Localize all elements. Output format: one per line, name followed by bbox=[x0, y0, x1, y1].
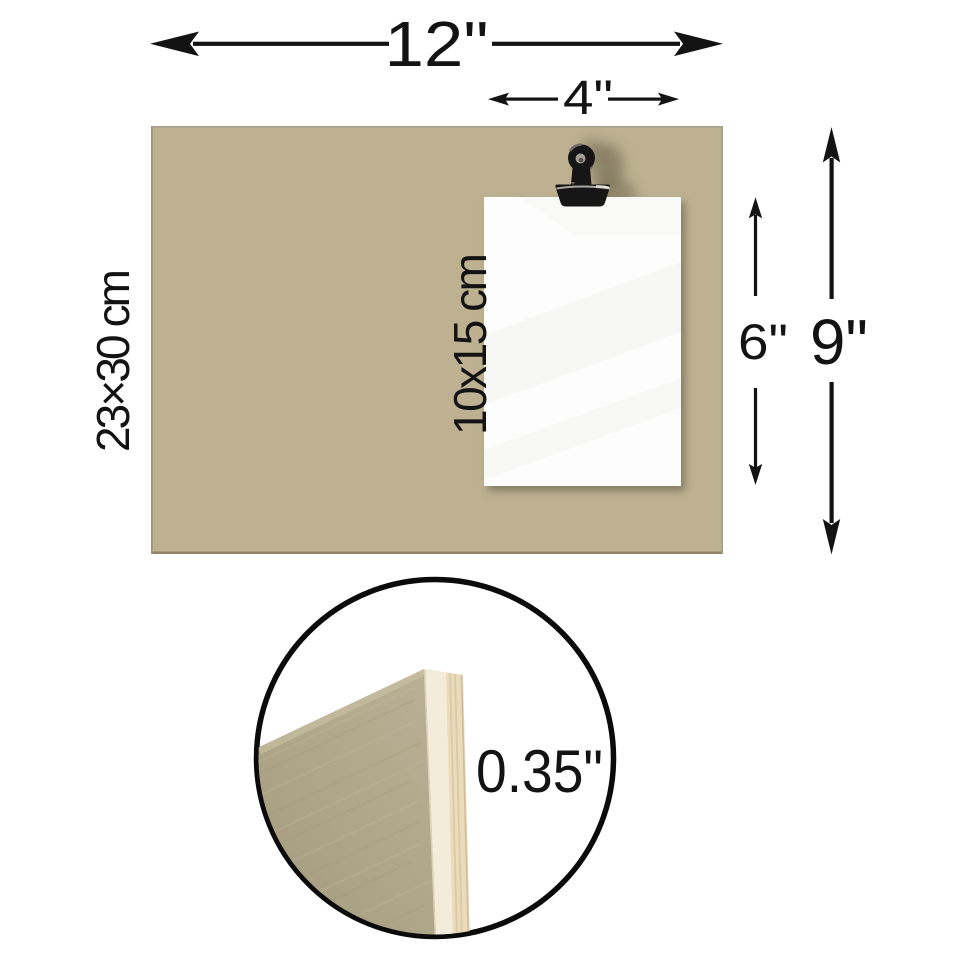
svg-text:23×30 cm: 23×30 cm bbox=[87, 269, 139, 452]
svg-text:4": 4" bbox=[563, 72, 613, 125]
svg-text:10x15 cm: 10x15 cm bbox=[444, 253, 496, 435]
svg-text:9": 9" bbox=[810, 306, 868, 378]
svg-text:0.35": 0.35" bbox=[476, 738, 603, 805]
svg-text:12": 12" bbox=[385, 8, 489, 80]
svg-text:6": 6" bbox=[738, 314, 788, 370]
